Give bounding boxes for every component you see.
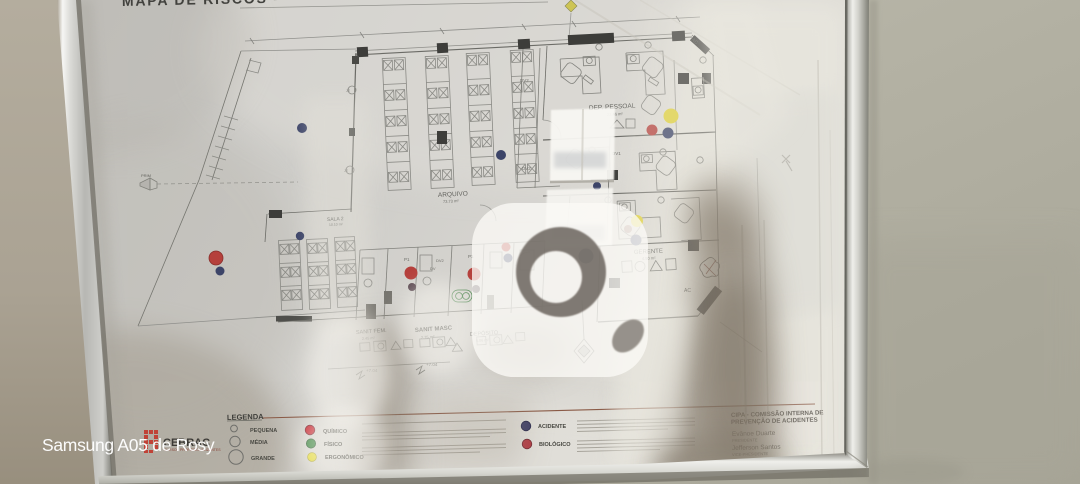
svg-text:DV2: DV2 [436,258,445,263]
svg-text:73.73 m²: 73.73 m² [443,198,460,204]
svg-text:BIOLÓGICO: BIOLÓGICO [539,440,571,448]
svg-text:PEQUENA: PEQUENA [250,428,277,434]
svg-text:GRANDE: GRANDE [251,456,275,462]
svg-text:LEGENDA: LEGENDA [227,412,264,422]
svg-text:ACIDENTE: ACIDENTE [538,424,566,430]
svg-text:DV2: DV2 [522,166,531,171]
svg-text:PRIM: PRIM [141,173,151,178]
svg-text:DV2: DV2 [520,78,529,83]
svg-text:JE: JE [346,89,351,93]
svg-text:P1: P1 [404,257,410,262]
svg-text:Samsung A05 de Rosy: Samsung A05 de Rosy [42,435,215,455]
svg-text:DV: DV [430,266,436,271]
svg-text:MÉDIA: MÉDIA [250,438,268,446]
